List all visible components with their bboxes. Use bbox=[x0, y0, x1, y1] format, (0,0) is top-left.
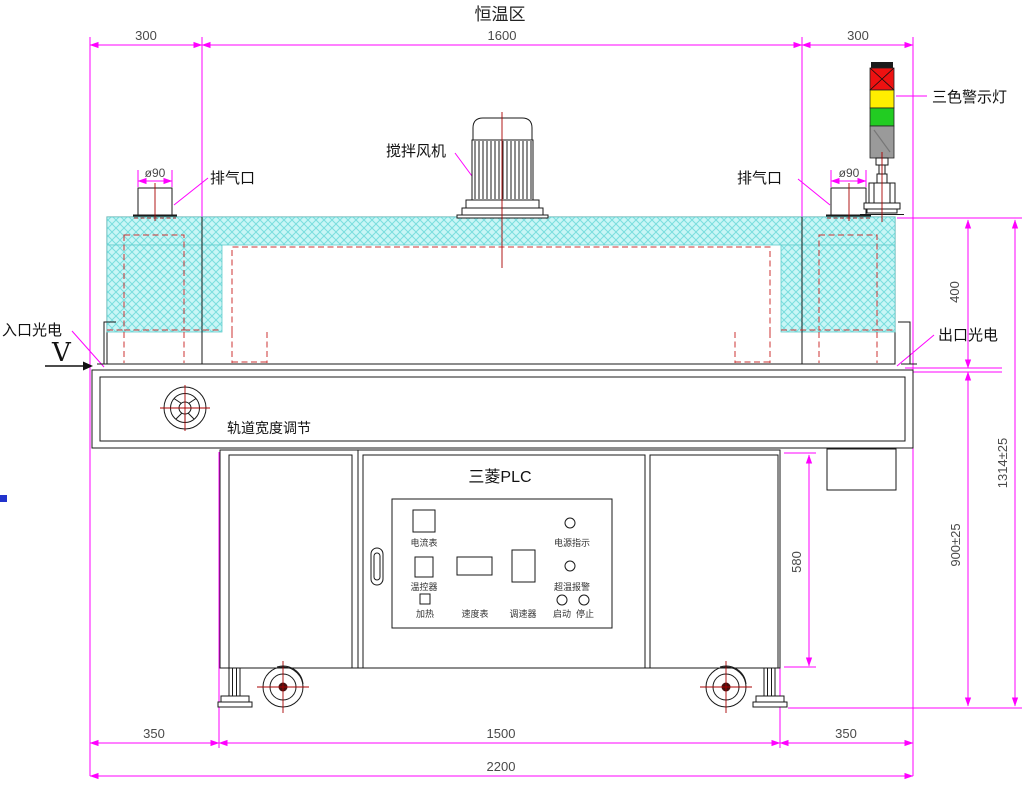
drawing-title: 恒温区 bbox=[475, 5, 526, 24]
label-ammeter: 电流表 bbox=[410, 537, 437, 548]
drawing-canvas: 恒温区 300 1600 300 ø90 ø90 排气口 排气口 搅拌风机 三色… bbox=[0, 0, 1028, 792]
label-inlet-sensor: 入口光电 bbox=[2, 322, 62, 339]
electrical-box bbox=[827, 449, 896, 490]
label-overtemp-alarm: 超温报警 bbox=[554, 581, 590, 592]
lamp-cap bbox=[871, 62, 893, 68]
machine-drawing: 恒温区 300 1600 300 ø90 ø90 排气口 排气口 搅拌风机 三色… bbox=[0, 0, 1028, 792]
dim-total-length: 2200 bbox=[487, 759, 516, 774]
label-speed-meter: 速度表 bbox=[461, 608, 488, 619]
dim-belt-height: 900±25 bbox=[948, 523, 963, 566]
label-direction-v: V bbox=[51, 338, 72, 368]
conveyor-table bbox=[92, 370, 913, 448]
dim-foot-left: 350 bbox=[143, 726, 165, 741]
label-heating: 加热 bbox=[416, 608, 434, 619]
caster-right bbox=[700, 661, 752, 713]
dim-zone-right: 300 bbox=[847, 28, 869, 43]
dim-total-height: 1314±25 bbox=[995, 438, 1010, 489]
label-temp-controller: 温控器 bbox=[410, 581, 437, 592]
exhaust-port-right bbox=[826, 183, 871, 221]
oven-body bbox=[107, 217, 895, 364]
label-stop: 停止 bbox=[576, 608, 594, 619]
warning-light-tower bbox=[860, 62, 904, 222]
exhaust-port-left bbox=[133, 183, 177, 221]
label-start: 启动 bbox=[553, 608, 571, 619]
leveling-foot-left bbox=[218, 668, 252, 707]
label-power-indicator: 电源指示 bbox=[554, 537, 590, 548]
label-speed-regulator: 调速器 bbox=[509, 609, 536, 619]
label-track-adjust: 轨道宽度调节 bbox=[227, 420, 311, 436]
leveling-foot-right bbox=[753, 668, 787, 707]
dim-zone-mid: 1600 bbox=[488, 28, 517, 43]
label-stir-fan: 搅拌风机 bbox=[386, 143, 446, 160]
label-plc: 三菱PLC bbox=[468, 468, 531, 486]
insulation-top-band bbox=[107, 217, 895, 245]
dim-cabinet-height: 580 bbox=[789, 551, 804, 573]
lamp-yellow bbox=[870, 90, 894, 108]
dim-base-mid: 1500 bbox=[487, 726, 516, 741]
lamp-green bbox=[870, 108, 894, 126]
label-outlet-sensor: 出口光电 bbox=[938, 327, 998, 344]
dim-dia-left: ø90 bbox=[145, 166, 166, 180]
label-warning-light: 三色警示灯 bbox=[932, 89, 1007, 106]
motor-fins bbox=[475, 141, 531, 199]
dim-oven-height: 400 bbox=[947, 281, 962, 303]
caster-left bbox=[257, 661, 309, 713]
insulation-right-column bbox=[781, 245, 895, 332]
dim-foot-right: 350 bbox=[835, 726, 857, 741]
label-exhaust-right: 排气口 bbox=[737, 170, 782, 187]
blue-cursor-artifact bbox=[0, 495, 7, 502]
dim-dia-right: ø90 bbox=[839, 166, 860, 180]
dim-zone-left: 300 bbox=[135, 28, 157, 43]
label-exhaust-left: 排气口 bbox=[210, 170, 255, 187]
